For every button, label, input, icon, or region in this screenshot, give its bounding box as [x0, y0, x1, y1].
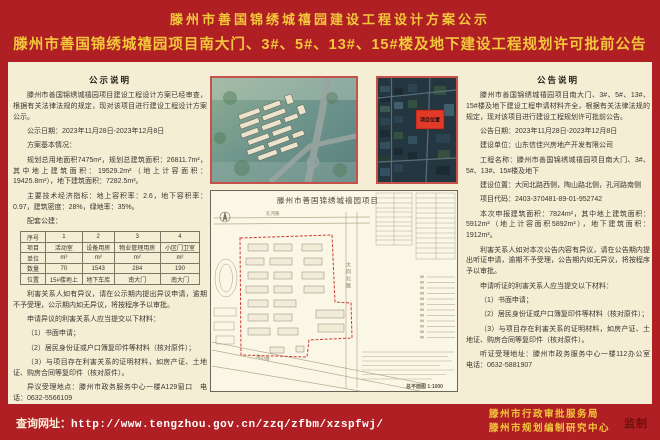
table-cell: 南大门: [114, 274, 160, 285]
table-row: 数量 70 1543 284 190: [21, 263, 200, 274]
table-cell: 物业管理用房: [114, 242, 160, 253]
paragraph: 滕州市善国锦绣城禧园项目南大门、3#、5#、13#、15#楼及地下建设工程申请材…: [466, 91, 650, 124]
display-date-line: 公示日期：2023年11月28日-2023年12月8日: [13, 127, 207, 138]
project-location-label: 项目位置: [420, 117, 440, 124]
paragraph: 申请异议的利害关系人应当提交以下材料：: [13, 315, 207, 326]
paragraph: 本次申报建筑面积：7824m²，其中地上建筑面积：5912m²（地上计容面积58…: [466, 210, 650, 243]
paragraph: 利害关系人如有异议，请在公示期内提出异议申请，逾期不予受理，公示期内如无异议，将…: [13, 290, 207, 312]
builder-line: 建设单位：山东信佳兴房地产开发有限公司: [466, 141, 650, 152]
road-label-north: 孔河路: [266, 210, 280, 217]
paragraph: 滕州市善国锦绣城禧园项目建设工程设计方案已经审查，根据有关法律法规的规定，现对该…: [13, 91, 207, 124]
satellite-map-image: 项目位置: [376, 76, 458, 184]
table-cell: m²: [82, 253, 114, 264]
table-cell: 地下车库: [82, 274, 114, 285]
announcement-date-line: 公告日期：2023年11月28日-2023年12月8日: [466, 127, 650, 138]
list-item: （1）书面申请；: [466, 296, 650, 307]
list-item: （3）与项目存在利害关系的证明材料，如房产证、土地证、购房合同等复印件（核对原件…: [466, 325, 650, 347]
public-display-panel: 公示说明 滕州市善国锦绣城禧园项目建设工程设计方案已经审查，根据有关法律法规的规…: [13, 74, 207, 408]
hearing-contact-line: 听证受理地址：滕州市政务服务中心一楼112办公室 电话：0632-5881907: [466, 350, 650, 372]
seal-mark: 监制: [624, 415, 648, 431]
org-name-2: 滕州市规划编制研究中心: [489, 422, 610, 436]
table-cell: 项目: [21, 242, 46, 253]
table-cell: 15#楼地上: [46, 274, 83, 285]
table-row: 单位 m² m² m² m²: [21, 253, 200, 264]
site-plan-graphic: 滕州市善国锦绣城禧园项目 孔河路 大同北路 陶山路: [210, 190, 458, 392]
issuing-organizations: 滕州市行政审批服务局 滕州市规划编制研究中心: [489, 408, 610, 436]
table-cell: 190: [160, 263, 199, 274]
query-url: http://www.tengzhou.gov.cn/zzq/zfbm/xzsp…: [71, 419, 383, 431]
table-cell: 4: [160, 232, 199, 243]
table-cell: 3: [114, 232, 160, 243]
table-cell: 南大门: [160, 274, 199, 285]
org-name-1: 滕州市行政审批服务局: [489, 408, 610, 422]
table-cell: 活动室: [46, 242, 83, 253]
amenities-table: 序号 1 2 3 4 项目 活动室 设备用房 物业管理用房 小区门卫室 单位 m…: [20, 231, 200, 285]
banner-title-line1: 滕州市善国锦绣城禧园建设工程设计方案公示: [0, 9, 660, 28]
table-cell: 70: [46, 263, 83, 274]
table-cell: 数量: [21, 263, 46, 274]
location-line: 建设位置：大同北路西侧，陶山路北侧，孔河路南侧: [466, 181, 650, 192]
table-cell: 小区门卫室: [160, 242, 199, 253]
site-plan-drawing: 滕州市善国锦绣城禧园项目 孔河路 大同北路 陶山路: [210, 190, 458, 392]
table-cell: 1: [46, 232, 83, 243]
paragraph: 配套公建：: [13, 217, 207, 228]
paragraph: 方案基本情况：: [13, 141, 207, 152]
site-plan-title: 滕州市善国锦绣城禧园项目: [277, 195, 379, 205]
query-url-label: 查询网址：: [16, 418, 71, 430]
paragraph: 利害关系人如对本次公告内容有异议，请在公告期内提出听证申请，逾期不予受理，公告期…: [466, 246, 650, 279]
table-cell: m²: [114, 253, 160, 264]
left-panel-title: 公示说明: [13, 74, 207, 86]
table-cell: 单位: [21, 253, 46, 264]
table-cell: 1543: [82, 263, 114, 274]
notice-poster: 滕州市善国锦绣城禧园建设工程设计方案公示 滕州市善国锦绣城禧园项目南大门、3#、…: [0, 0, 660, 440]
table-cell: 位置: [21, 274, 46, 285]
table-row: 序号 1 2 3 4: [21, 232, 200, 243]
project-location-marker: 项目位置: [416, 110, 444, 129]
list-item: （1）书面申请；: [13, 329, 207, 340]
table-cell: m²: [160, 253, 199, 264]
paragraph: 规划总用地面积7475m²，规划总建筑面积：26811.7m²，其中地上建筑面积…: [13, 156, 207, 189]
table-cell: 设备用房: [82, 242, 114, 253]
satellite-map-graphic: 项目位置: [378, 78, 456, 182]
bottom-bar: 查询网址：http://www.tengzhou.gov.cn/zzq/zfbm…: [0, 404, 660, 440]
table-cell: m²: [46, 253, 83, 264]
right-panel-title: 公告说明: [466, 74, 650, 86]
paragraph: 申请听证的利害关系人应当提交以下材料：: [466, 282, 650, 293]
paragraph: 主要技术经济指标：地上容积率：2.6，地下容积率：0.97，建筑密度：28%，绿…: [13, 192, 207, 214]
project-name-line: 工程名称：滕州市善国锦绣城禧园项目南大门、3#、5#、13#、15#楼及地下: [466, 156, 650, 178]
table-cell: 2: [82, 232, 114, 243]
aerial-render-graphic: [212, 78, 356, 182]
aerial-render-image: [210, 76, 358, 184]
list-item: （2）居民身份证或户口簿复印件等材料（核对原件）；: [466, 310, 650, 321]
list-item: （2）居民身份证或户口簿复印件等材料（核对原件）；: [13, 344, 207, 355]
banner-title-line2: 滕州市善国锦绣城禧园项目南大门、3#、5#、13#、15#楼及地下建设工程规划许…: [0, 33, 660, 54]
table-row: 项目 活动室 设备用房 物业管理用房 小区门卫室: [21, 242, 200, 253]
table-row: 位置 15#楼地上 地下车库 南大门 南大门: [21, 274, 200, 285]
table-cell: 284: [114, 263, 160, 274]
paper-background: 公示说明 滕州市善国锦绣城禧园项目建设工程设计方案已经审查，根据有关法律法规的规…: [8, 62, 652, 404]
road-label-east: 大同北路: [345, 261, 351, 290]
objection-contact-line: 异议受理地点：滕州市政务服务中心一楼A129窗口 电话：0632-5566109: [13, 383, 207, 405]
project-code-line: 项目代码：2403-370481-89-01-952742: [466, 195, 650, 206]
list-item: （3）与项目存在利害关系的证明材料，如房产证、土地证、购房合同等复印件（核对原件…: [13, 358, 207, 380]
table-cell: 序号: [21, 232, 46, 243]
query-url-line: 查询网址：http://www.tengzhou.gov.cn/zzq/zfbm…: [16, 415, 383, 431]
plan-scale-label: 总平面图 1:1000: [406, 383, 443, 390]
pre-approval-announcement-panel: 公告说明 滕州市善国锦绣城禧园项目南大门、3#、5#、13#、15#楼及地下建设…: [466, 74, 650, 375]
